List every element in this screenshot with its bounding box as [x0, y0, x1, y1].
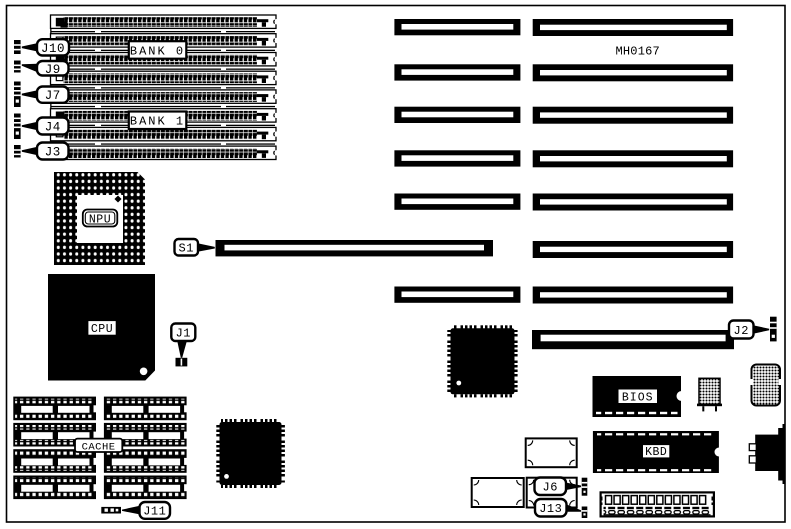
svg-text:J9: J9: [45, 63, 61, 77]
svg-text:J1: J1: [176, 327, 191, 341]
svg-text:J10: J10: [41, 42, 65, 56]
svg-text:J6: J6: [543, 481, 558, 495]
svg-text:MH0167: MH0167: [616, 44, 660, 58]
svg-text:J13: J13: [539, 502, 562, 516]
svg-text:J3: J3: [45, 146, 61, 160]
svg-text:J2: J2: [734, 324, 749, 338]
svg-text:CPU: CPU: [91, 323, 113, 336]
svg-text:S1: S1: [179, 242, 194, 256]
svg-text:KBD: KBD: [645, 446, 667, 459]
svg-text:CACHE: CACHE: [82, 441, 116, 453]
svg-text:BIOS: BIOS: [622, 391, 654, 404]
svg-text:NPU: NPU: [89, 213, 111, 226]
svg-text:J7: J7: [45, 89, 61, 103]
svg-text:J11: J11: [143, 505, 166, 519]
svg-text:J4: J4: [45, 121, 61, 135]
svg-text:BANK 0: BANK 0: [130, 44, 185, 58]
svg-text:BANK 1: BANK 1: [130, 115, 185, 129]
